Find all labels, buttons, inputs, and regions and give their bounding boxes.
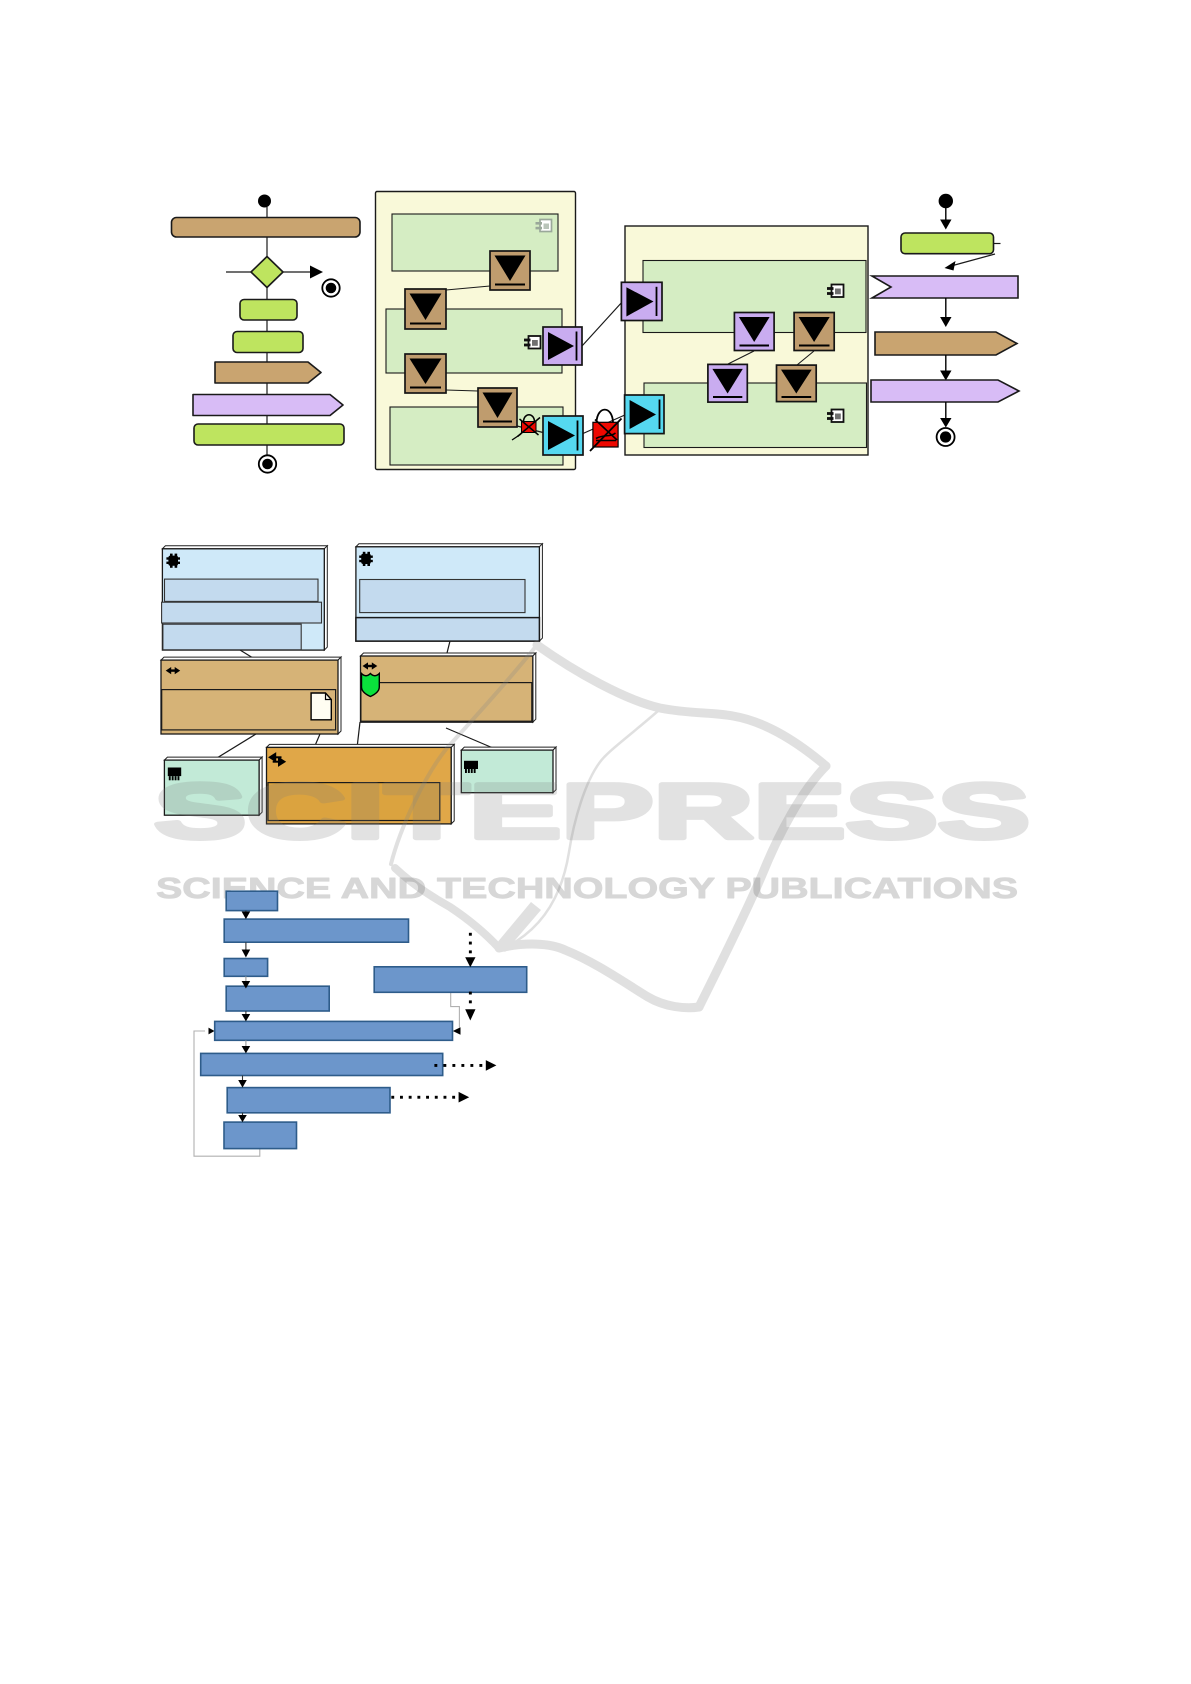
svg-text:SCITEPRESS: SCITEPRESS <box>154 767 1030 855</box>
svg-text:SCIENCE AND TECHNOLOGY PUBLICA: SCIENCE AND TECHNOLOGY PUBLICATIONS <box>156 873 1018 905</box>
